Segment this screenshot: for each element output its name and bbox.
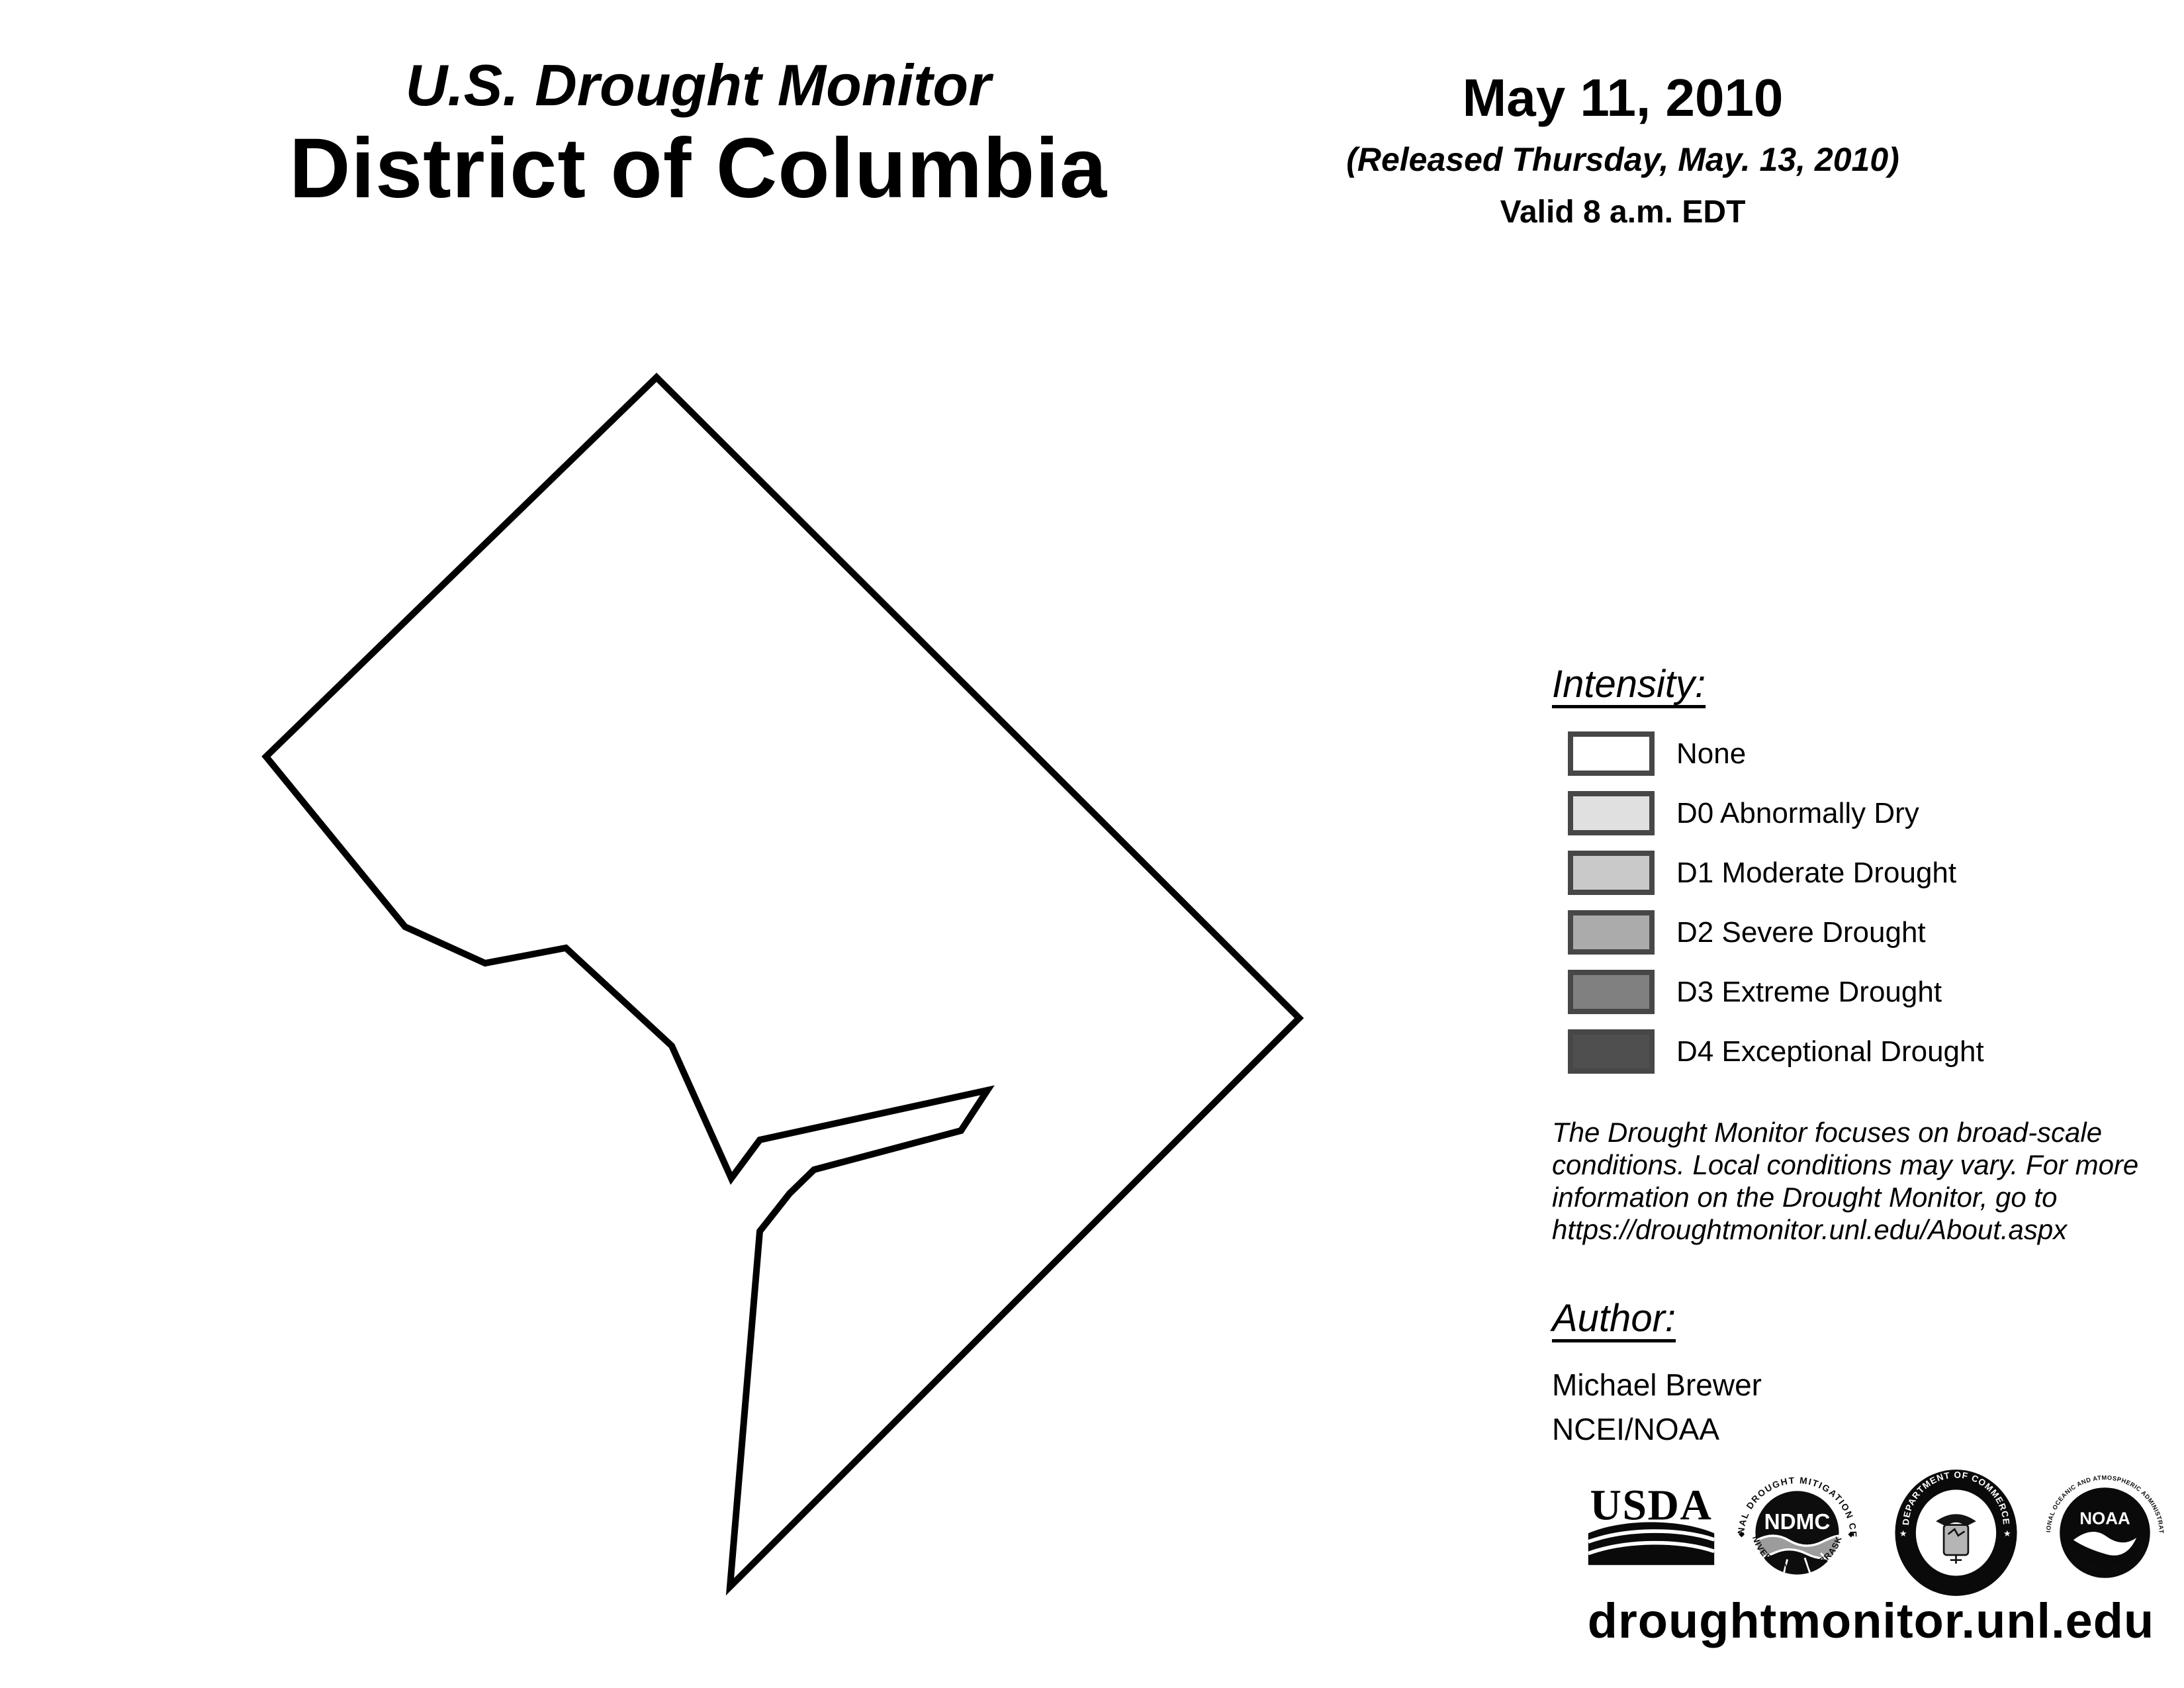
author-org: NCEI/NOAA	[1552, 1411, 1762, 1448]
valid-time: Valid 8 a.m. EDT	[1292, 195, 1954, 230]
swatch-d3	[1568, 970, 1655, 1014]
noaa-abbr: NOAA	[2079, 1509, 2130, 1528]
title-block: U.S. Drought Monitor District of Columbi…	[152, 52, 1244, 216]
legend-label: D1 Moderate Drought	[1676, 857, 1956, 890]
legend-row-d4: D4 Exceptional Drought	[1568, 1029, 1984, 1074]
dc-boundary-polygon	[266, 377, 1299, 1587]
legend-label: D3 Extreme Drought	[1676, 976, 1942, 1009]
swatch-none	[1568, 731, 1655, 776]
disclaimer-text: The Drought Monitor focuses on broad-sca…	[1552, 1116, 2181, 1246]
ndmc-seal-icon: NDMC NATIONAL DROUGHT MITIGATION CENTER …	[1733, 1468, 1862, 1597]
ndmc-separator-right: ◆	[1848, 1530, 1854, 1538]
report-series-title: U.S. Drought Monitor	[152, 52, 1244, 118]
swatch-d1	[1568, 851, 1655, 895]
doc-star-left: ★	[1899, 1528, 1907, 1538]
legend-label: None	[1676, 737, 1746, 771]
noaa-seal-icon: NOAA NATIONAL OCEANIC AND ATMOSPHERIC AD…	[2040, 1468, 2169, 1597]
doc-star-right: ★	[2003, 1528, 2011, 1538]
legend-label: D0 Abnormally Dry	[1676, 797, 1919, 830]
map-date: May 11, 2010	[1292, 69, 1954, 127]
legend-label: D4 Exceptional Drought	[1676, 1035, 1984, 1068]
legend-row-none: None	[1568, 731, 1984, 776]
usda-logo: USDA	[1585, 1468, 1717, 1584]
disclaimer-line: conditions. Local conditions may vary. F…	[1552, 1149, 2181, 1181]
ndmc-separator-left: ◆	[1739, 1530, 1745, 1538]
author-name: Michael Brewer	[1552, 1367, 1762, 1403]
disclaimer-line: information on the Drought Monitor, go t…	[1552, 1181, 2181, 1213]
author-heading: Author:	[1552, 1296, 1762, 1340]
released-date: (Released Thursday, May. 13, 2010)	[1292, 142, 1954, 178]
legend-label: D2 Severe Drought	[1676, 916, 1926, 949]
usda-swoosh-icon	[1588, 1523, 1714, 1566]
disclaimer-line: https://droughtmonitor.unl.edu/About.asp…	[1552, 1213, 2181, 1246]
legend-heading: Intensity:	[1552, 662, 1984, 706]
ndmc-abbr: NDMC	[1764, 1510, 1831, 1534]
page-title: District of Columbia	[152, 122, 1244, 216]
legend-row-d0: D0 Abnormally Dry	[1568, 791, 1984, 835]
author-block: Author: Michael Brewer NCEI/NOAA	[1552, 1296, 1762, 1448]
legend-row-d2: D2 Severe Drought	[1568, 910, 1984, 955]
legend-row-d1: D1 Moderate Drought	[1568, 851, 1984, 895]
disclaimer-line: The Drought Monitor focuses on broad-sca…	[1552, 1116, 2181, 1149]
website-url: droughtmonitor.unl.edu	[1573, 1593, 2169, 1649]
swatch-d2	[1568, 910, 1655, 955]
legend-row-d3: D3 Extreme Drought	[1568, 970, 1984, 1014]
swatch-d4	[1568, 1029, 1655, 1074]
date-block: May 11, 2010 (Released Thursday, May. 13…	[1292, 69, 1954, 230]
swatch-d0	[1568, 791, 1655, 835]
doc-seal-icon: DEPARTMENT OF COMMERCE UNITED STATES OF …	[1891, 1468, 2021, 1597]
intensity-legend: Intensity: None D0 Abnormally Dry D1 Mod…	[1552, 662, 1984, 1089]
